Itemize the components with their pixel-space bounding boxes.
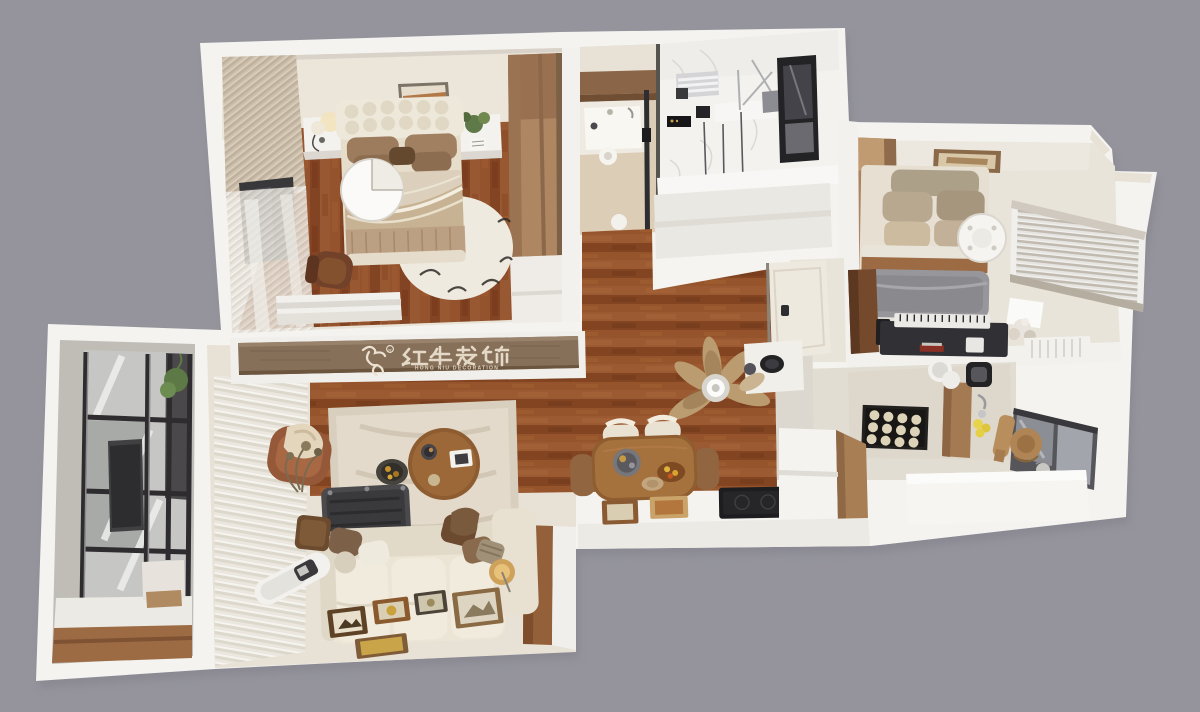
svg-text:HONG NIU DECORATION: HONG NIU DECORATION [415, 366, 499, 372]
svg-text:R: R [388, 348, 392, 354]
